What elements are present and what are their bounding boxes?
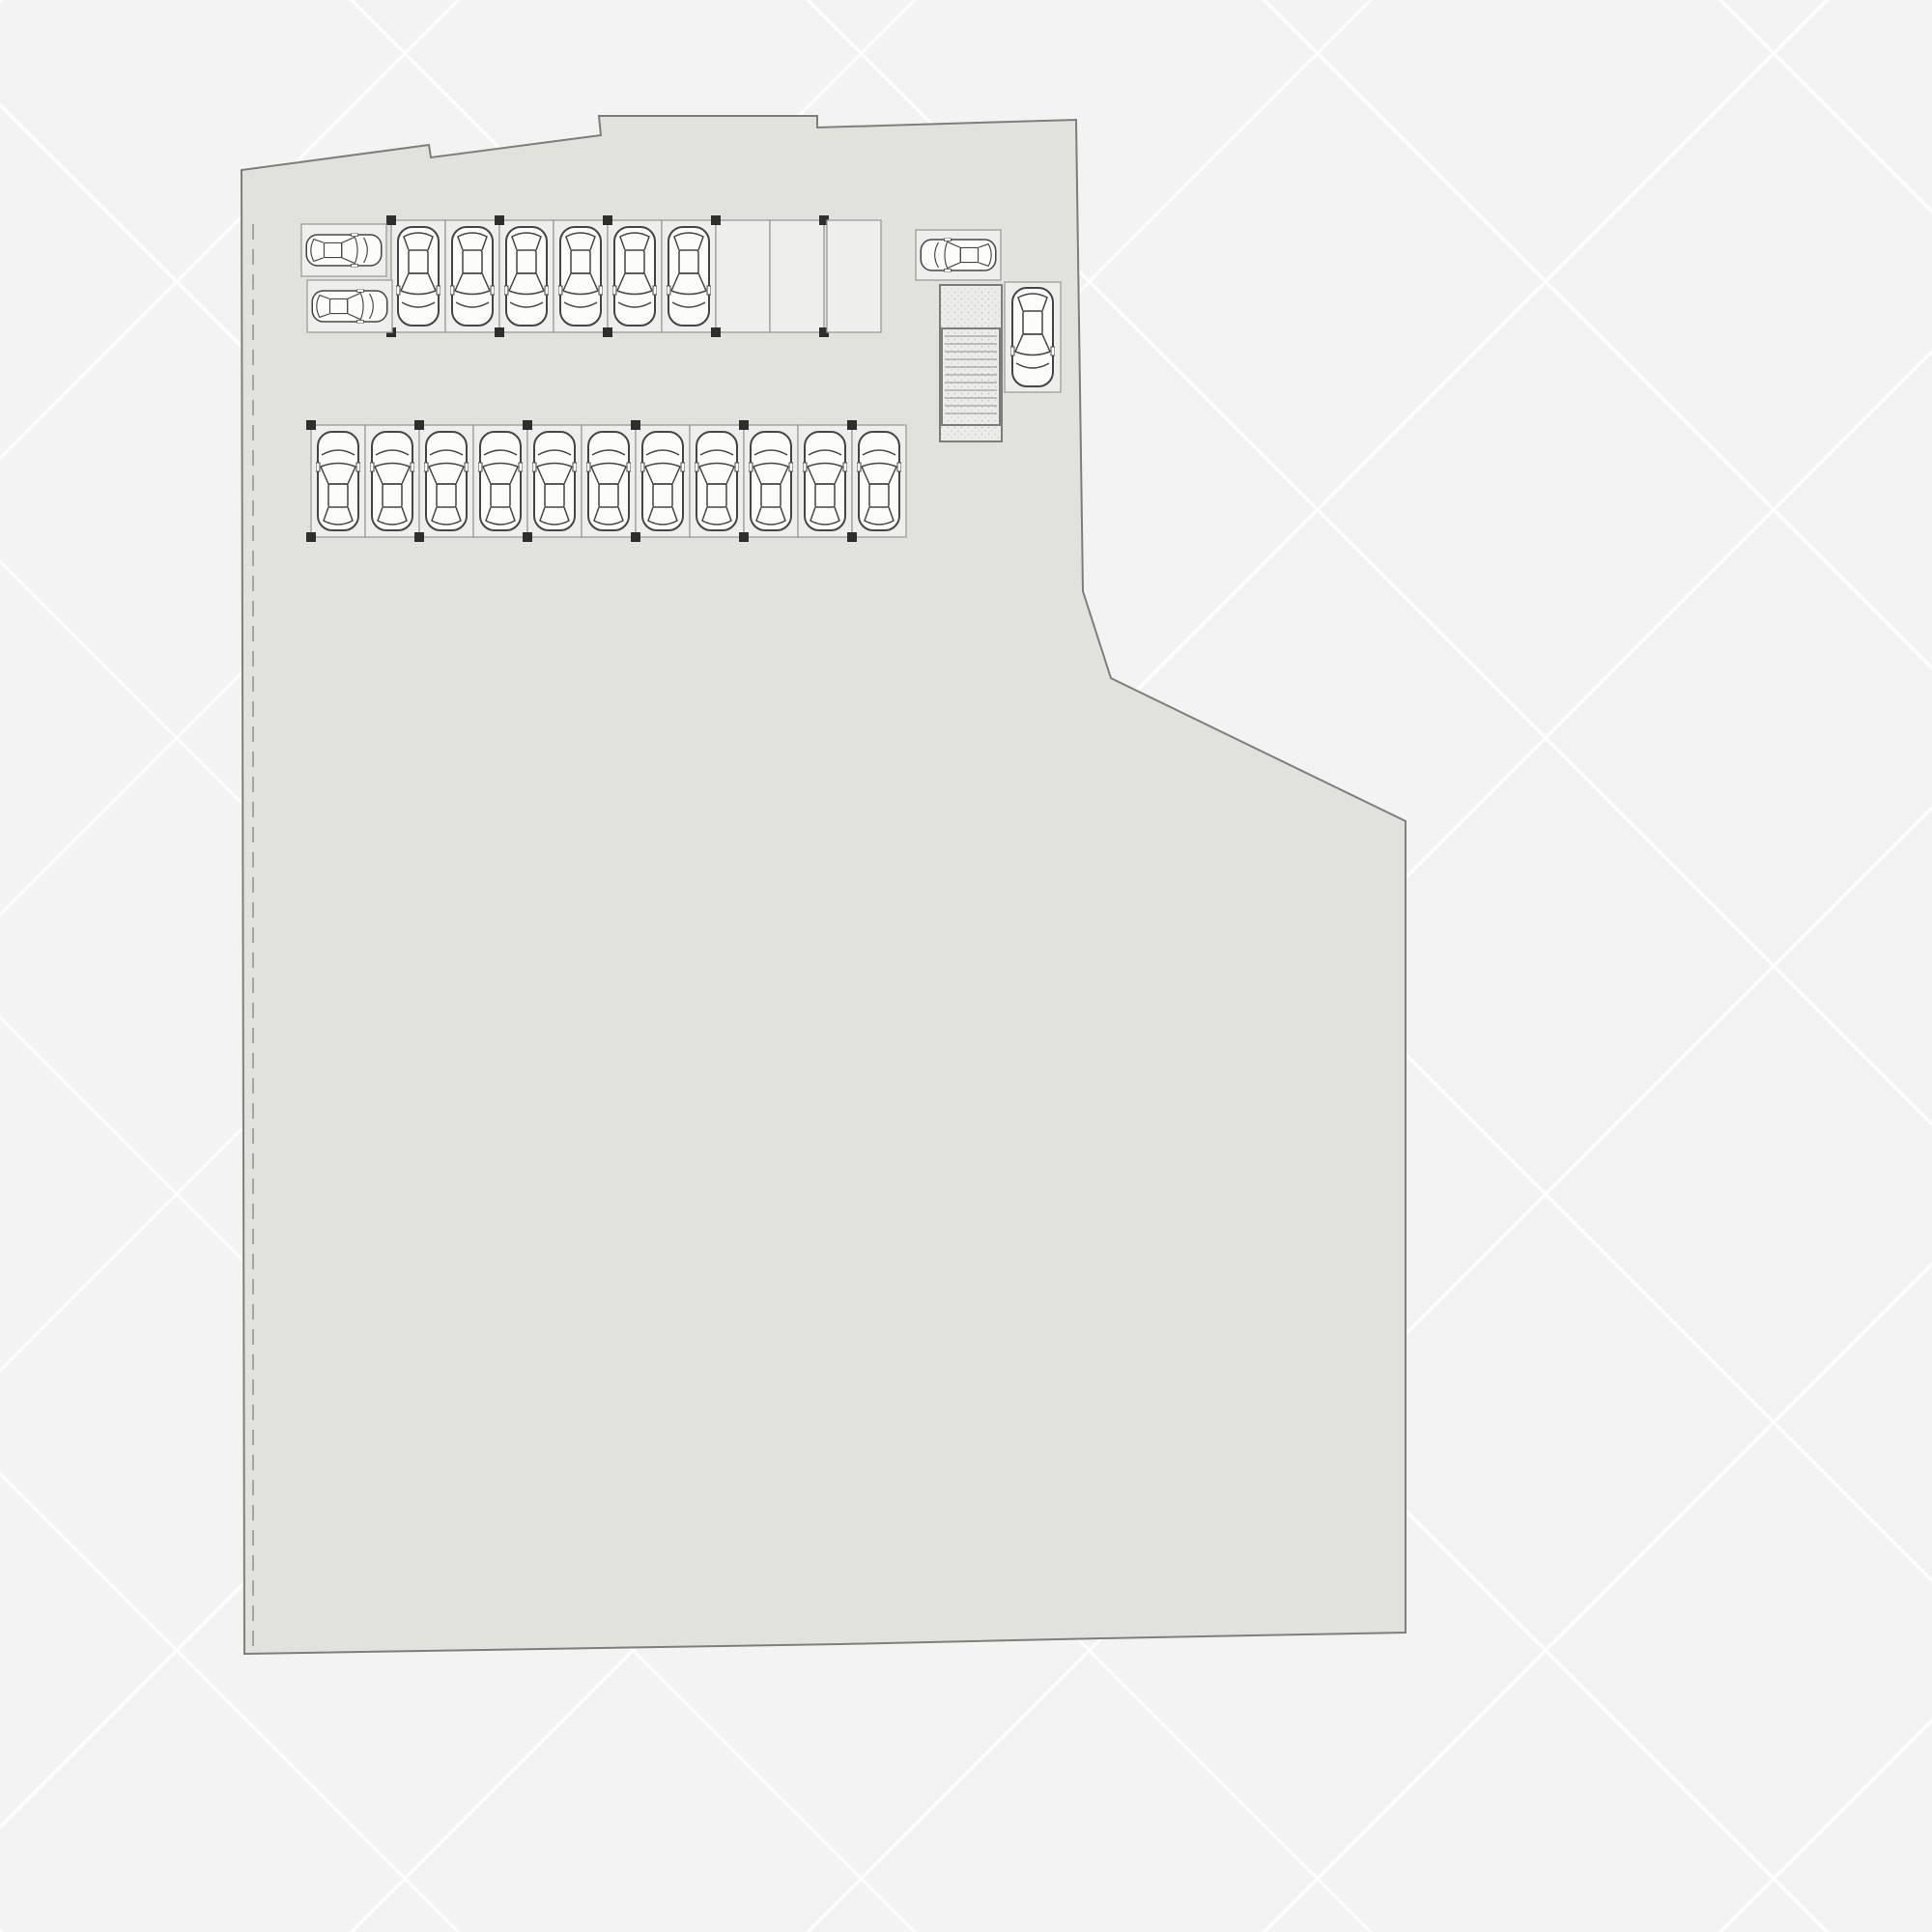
parking-row: [306, 420, 906, 542]
car-icon: [424, 432, 469, 530]
stairs-icon: [942, 328, 1000, 425]
parking-stall: [1005, 282, 1061, 392]
parking-stall: [827, 220, 881, 332]
car-icon: [921, 239, 996, 272]
floor-plan-poster: [0, 0, 1932, 1932]
car-icon: [396, 227, 440, 326]
parking-row: [386, 215, 829, 337]
car-icon: [558, 227, 603, 326]
car-icon: [1010, 288, 1055, 386]
column-marker: [523, 420, 532, 430]
parking-stall-horizontal: [301, 224, 386, 276]
car-icon: [749, 432, 793, 530]
car-icon: [450, 227, 495, 326]
car-icon: [478, 432, 523, 530]
column-marker: [414, 420, 424, 430]
site-boundary: [241, 116, 1406, 1654]
column-marker: [495, 327, 504, 337]
parking-stall-horizontal: [916, 230, 1001, 280]
plan-root: [241, 116, 1406, 1654]
column-marker: [386, 215, 396, 225]
column-marker: [414, 532, 424, 542]
column-marker: [711, 327, 721, 337]
parking-stall: [770, 220, 824, 332]
car-icon: [316, 432, 360, 530]
column-marker: [306, 420, 316, 430]
column-marker: [739, 532, 749, 542]
column-marker: [523, 532, 532, 542]
column-marker: [495, 215, 504, 225]
column-marker: [631, 532, 640, 542]
car-icon: [306, 234, 382, 268]
car-icon: [504, 227, 549, 326]
site-plan-drawing: [0, 0, 1932, 1932]
car-icon: [695, 432, 739, 530]
car-icon: [370, 432, 414, 530]
column-marker: [631, 420, 640, 430]
car-icon: [640, 432, 685, 530]
parking-stall: [716, 220, 770, 332]
column-marker: [603, 215, 612, 225]
column-marker: [306, 532, 316, 542]
car-icon: [312, 290, 387, 324]
car-icon: [803, 432, 847, 530]
parking-stall-horizontal: [307, 280, 392, 332]
column-marker: [847, 532, 857, 542]
column-marker: [603, 327, 612, 337]
car-icon: [667, 227, 711, 326]
car-icon: [532, 432, 577, 530]
car-icon: [586, 432, 631, 530]
car-icon: [612, 227, 657, 326]
column-marker: [739, 420, 749, 430]
car-icon: [857, 432, 901, 530]
column-marker: [711, 215, 721, 225]
column-marker: [847, 420, 857, 430]
